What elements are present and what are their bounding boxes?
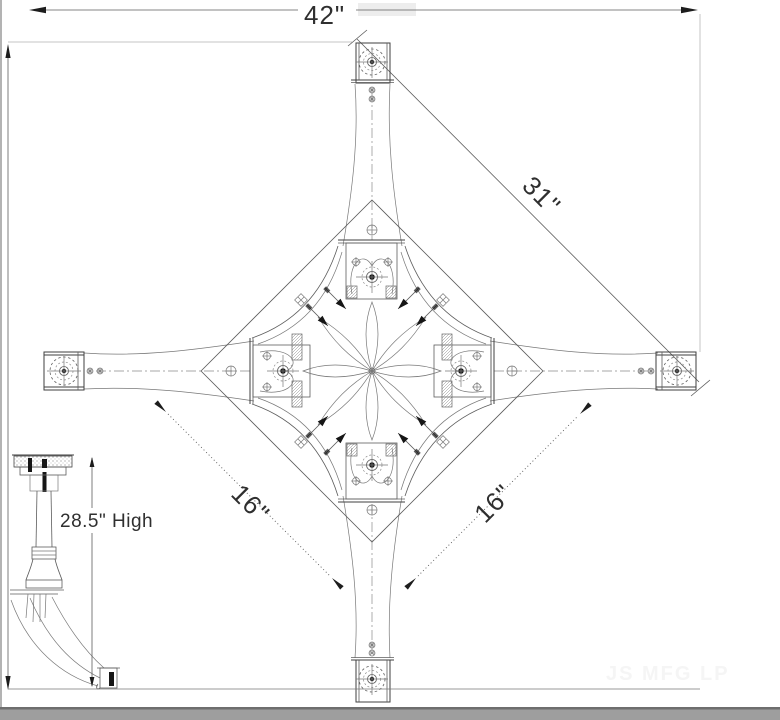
clip-bracket — [386, 286, 396, 298]
dimension-16-right-label: 16" — [468, 478, 518, 528]
spider-plate-bottom — [338, 443, 405, 502]
arrowhead-right — [681, 7, 698, 13]
foot-top — [351, 43, 394, 102]
elevation-leg — [10, 590, 120, 689]
foot-bottom — [351, 642, 394, 702]
foot-left — [44, 352, 103, 390]
elevation-tabletop — [12, 455, 74, 492]
spider-plate-left — [250, 334, 310, 407]
bottom-strip — [0, 710, 780, 720]
clip-bracket — [442, 381, 452, 407]
dimension-42-label: 42" — [304, 0, 345, 30]
bolt-mark — [351, 476, 361, 486]
dimension-highlight — [358, 3, 416, 16]
bolt-mark — [383, 257, 393, 267]
clip-bracket — [442, 334, 452, 360]
screw-mark — [369, 642, 375, 648]
dimension-16-right: 16" — [404, 402, 591, 589]
dimension-16-left-label: 16" — [226, 478, 276, 528]
bolt-mark — [472, 382, 482, 392]
bolt-mark — [351, 257, 361, 267]
dimension-42: 42" — [29, 0, 698, 30]
cad-drawing: JS MFG LP 42" 31" — [0, 0, 780, 720]
bolt-mark — [262, 351, 272, 361]
bolt-mark — [383, 476, 393, 486]
screw-mark — [87, 368, 93, 374]
drawing-canvas: JS MFG LP 42" 31" — [0, 0, 780, 720]
spider-plate-top — [338, 240, 405, 299]
screw-mark — [638, 368, 644, 374]
arrowhead-left — [29, 7, 46, 13]
clip-bracket — [386, 444, 396, 456]
plan-view: 16" 16" — [44, 43, 696, 702]
dimension-height-label: 28.5" High — [60, 511, 153, 532]
spider-casting — [226, 225, 517, 515]
dimension-left-vertical — [5, 44, 10, 690]
screw-mark — [369, 96, 375, 102]
dimension-31: 31" — [348, 30, 710, 396]
spider-plate-right — [434, 334, 494, 407]
bolt-mark — [472, 351, 482, 361]
elevation-foot — [97, 668, 120, 689]
elevation-view: 28.5" High — [8, 455, 700, 689]
clip-bracket — [292, 381, 302, 407]
dimension-28-5: 28.5" High — [57, 457, 153, 687]
extension-lines — [8, 14, 700, 352]
dimension-31-label: 31" — [517, 170, 567, 220]
screw-mark — [369, 87, 375, 93]
screw-mark — [97, 368, 103, 374]
watermark-text: JS MFG LP — [606, 663, 730, 685]
bottom-strip-edge — [0, 707, 780, 710]
page-border — [0, 0, 780, 720]
elevation-column — [26, 491, 62, 588]
clip-bracket — [292, 334, 302, 360]
screw-mark — [648, 368, 654, 374]
bolt-mark — [262, 382, 272, 392]
